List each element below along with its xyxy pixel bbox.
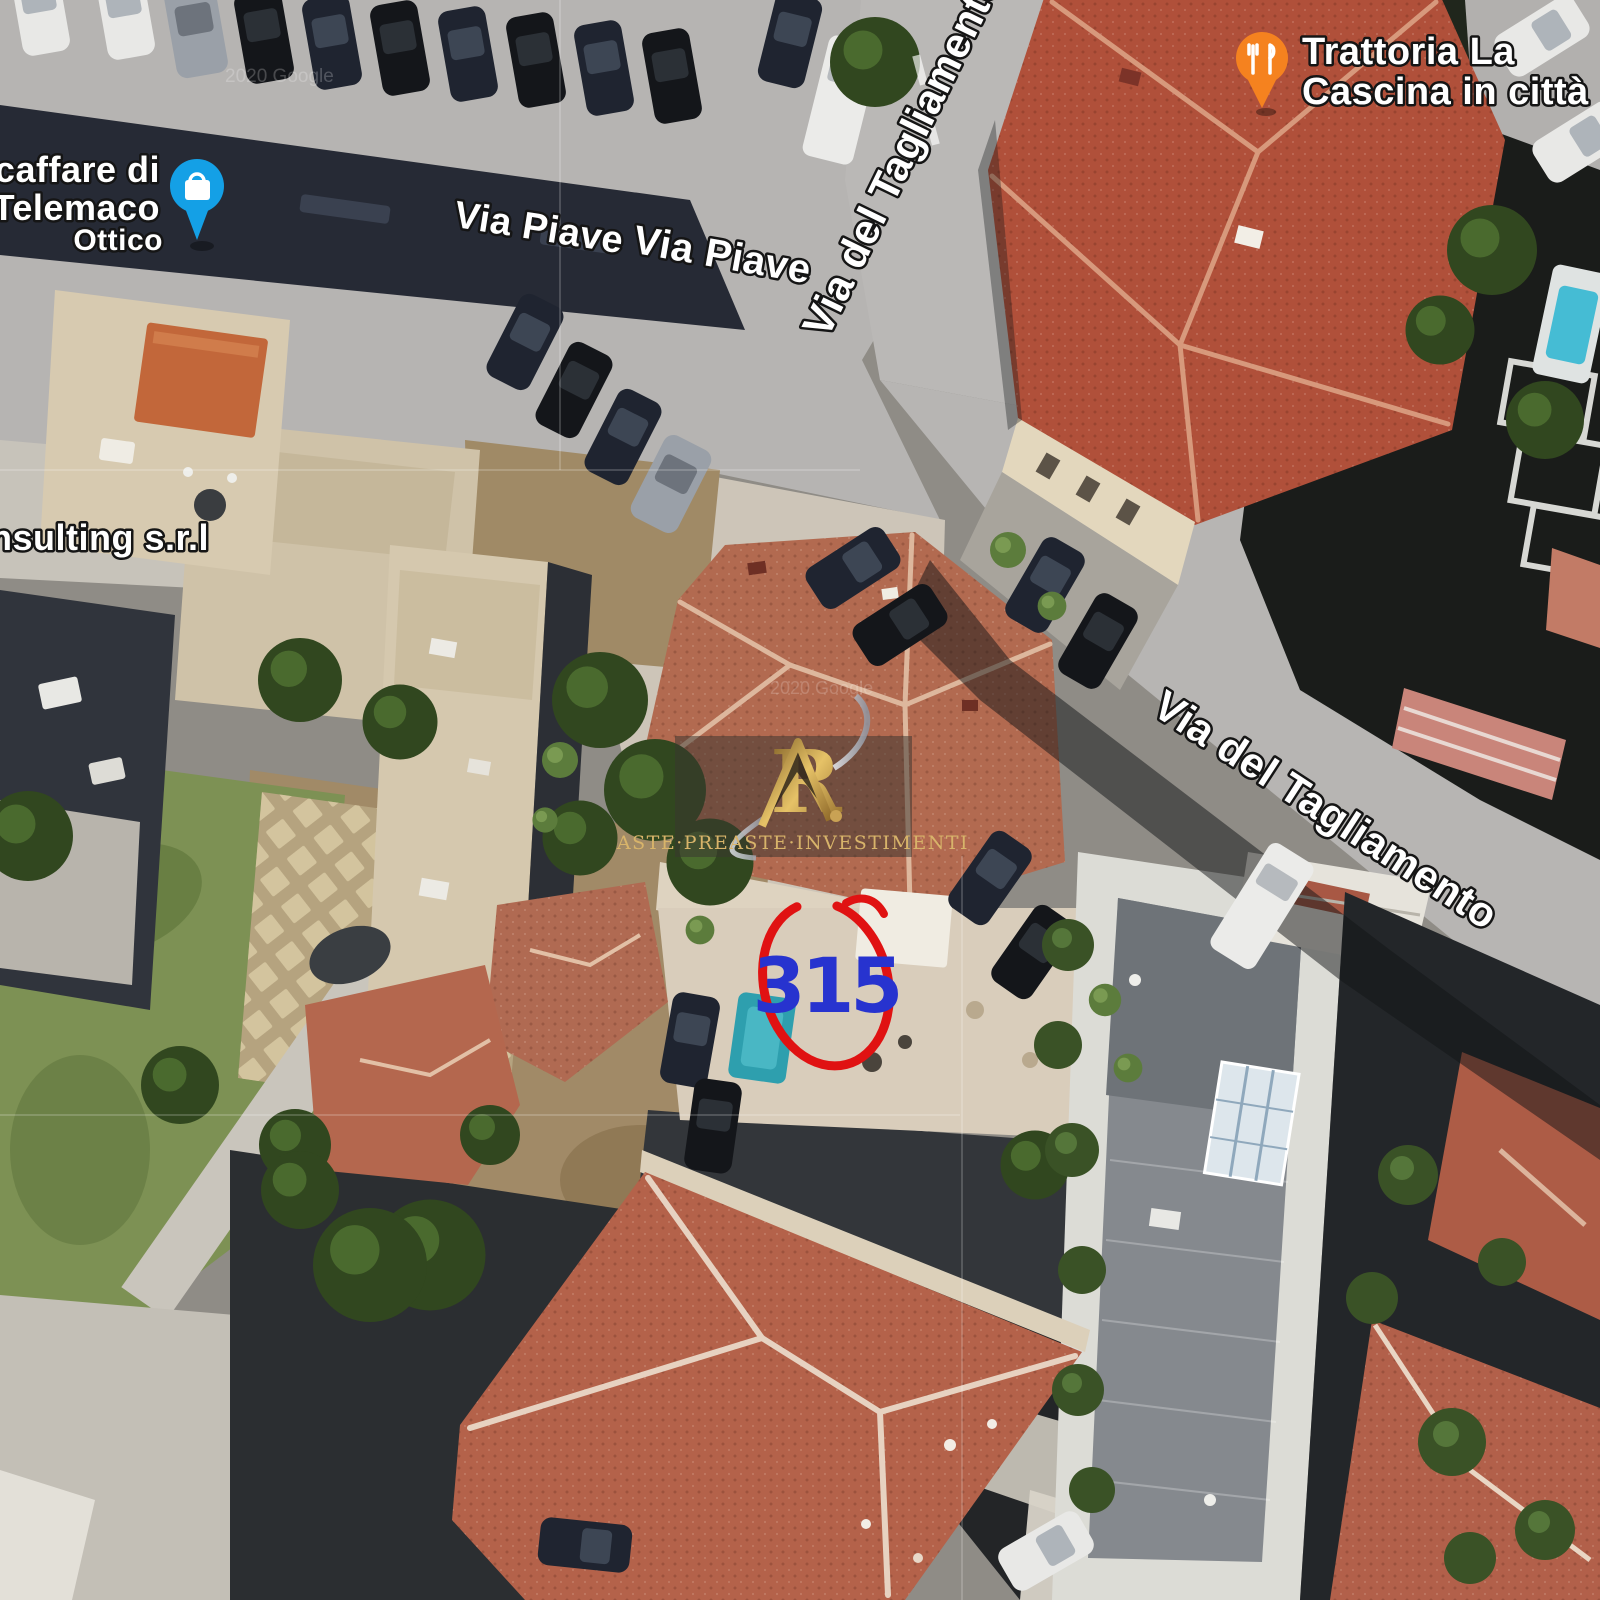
imagery-credit: 2020 Google (225, 66, 334, 87)
map-canvas: 2020 Google 2020 Google Via Piave Via Pi… (0, 0, 1600, 1600)
consulting-label: nsulting s.r.l (0, 517, 209, 558)
trattoria-label-line2: Cascina in città (1302, 71, 1589, 113)
marker-number: 315 (753, 941, 900, 1030)
ottica-label-line2: la Telemaco (0, 187, 160, 228)
agency-brand-text: ASTE·PREASTE·INVESTIMENTI (616, 832, 969, 854)
ottica-label-line1: Otticaffare di (0, 149, 160, 190)
skylight-grid (1204, 1062, 1299, 1185)
ottica-label-line3: Ottico (73, 224, 163, 257)
chimney (747, 561, 766, 575)
trattoria-label-line1: Trattoria La (1302, 31, 1515, 73)
satellite-map: 2020 Google 2020 Google Via Piave Via Pi… (0, 0, 1600, 1600)
